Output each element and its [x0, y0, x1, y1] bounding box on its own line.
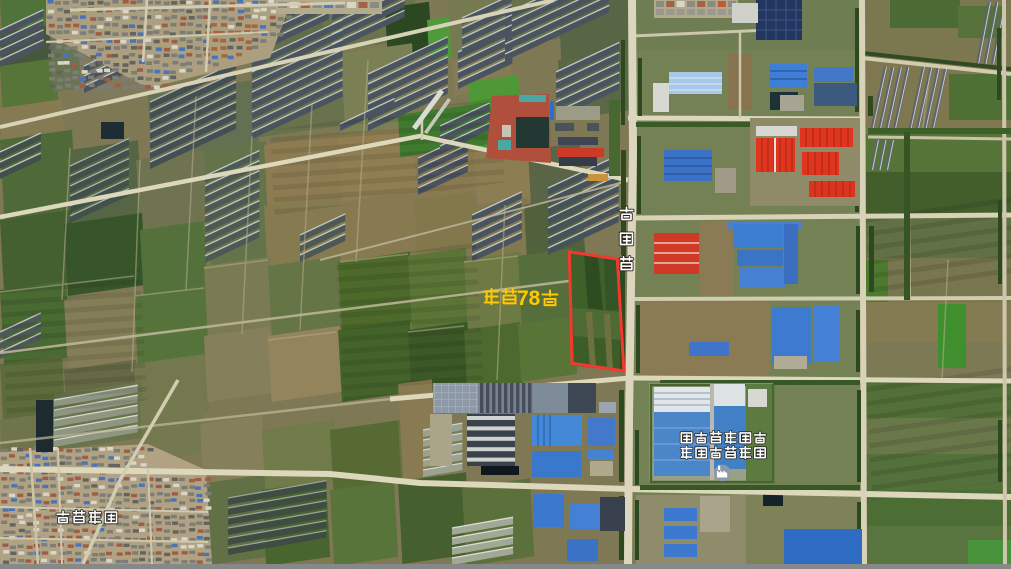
svg-text:78: 78 — [517, 287, 541, 310]
